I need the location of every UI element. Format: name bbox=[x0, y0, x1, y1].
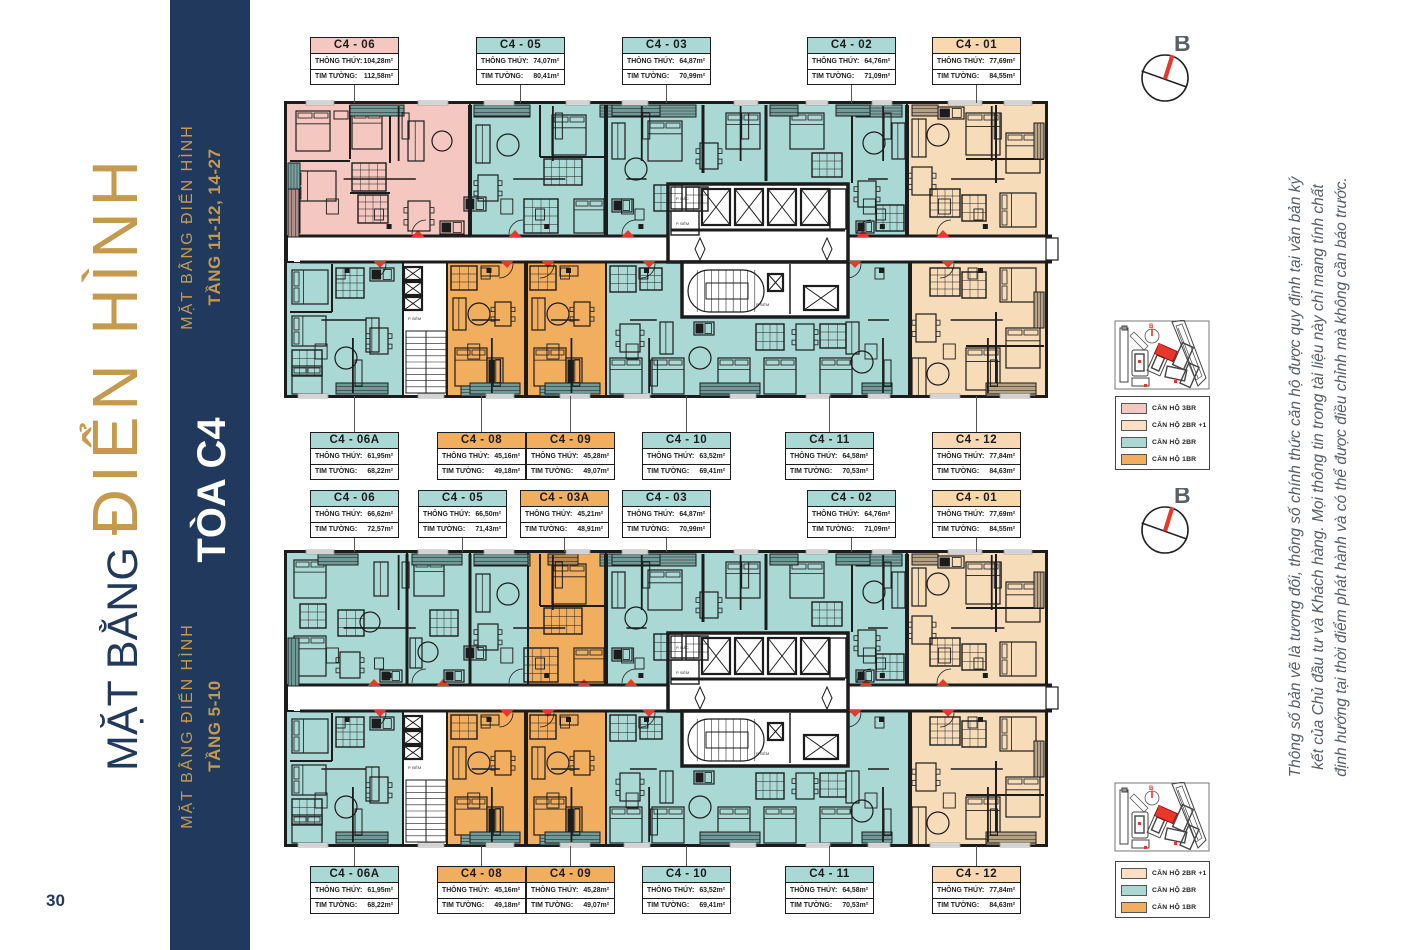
svg-text:P. ÐÊM: P. ÐÊM bbox=[676, 670, 689, 675]
svg-text:B: B bbox=[1149, 324, 1154, 330]
svg-text:P. ÐÊM: P. ÐÊM bbox=[408, 765, 421, 770]
svg-text:P. ÐÊM: P. ÐÊM bbox=[408, 316, 421, 321]
svg-text:B: B bbox=[1174, 36, 1191, 56]
svg-text:B: B bbox=[1149, 786, 1154, 792]
svg-text:P. ÐÊM: P. ÐÊM bbox=[756, 302, 769, 307]
svg-text:P. ÐÊM: P. ÐÊM bbox=[676, 221, 689, 226]
svg-text:P. ÐÊM: P. ÐÊM bbox=[756, 751, 769, 756]
svg-text:B: B bbox=[1174, 488, 1191, 508]
